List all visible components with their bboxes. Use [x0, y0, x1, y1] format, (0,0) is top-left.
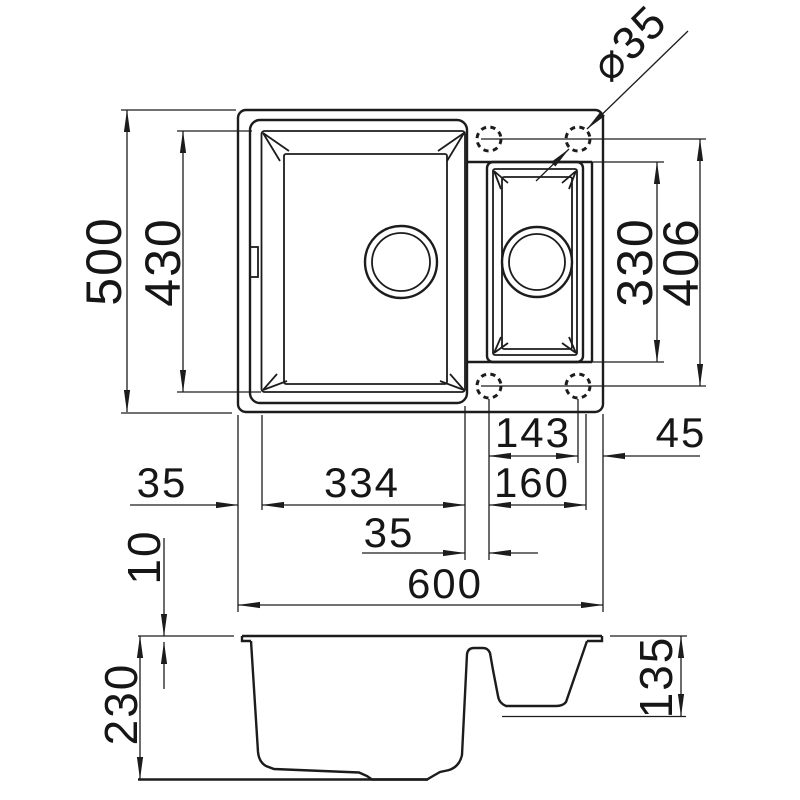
dims-bottom: 143 45 35 334 160 35 600: [130, 399, 706, 612]
front-view: 10 230 135: [95, 529, 687, 779]
dim-label-500: 500: [76, 216, 132, 305]
dim-label-334: 334: [324, 459, 400, 506]
front-bowls-profile: [251, 641, 587, 780]
dims-left: 500 430: [76, 110, 261, 413]
small-bowl-inner: [502, 177, 572, 349]
small-bowl: [487, 162, 583, 362]
tap-ledge: [467, 162, 592, 362]
dim-label-430: 430: [135, 217, 191, 306]
main-bowl-bevel-marks: [263, 133, 464, 390]
dim-label-35-mid: 35: [364, 509, 415, 556]
main-drain-inner: [372, 233, 430, 291]
small-bowl-bevel-marks: [494, 171, 576, 353]
dim-label-10: 10: [118, 529, 170, 584]
dim-label-45: 45: [656, 409, 707, 456]
main-bowl-outer: [250, 120, 467, 403]
sink-outline: [238, 110, 603, 412]
sink-technical-drawing: 500 430 330 406 ⌀35 143 45: [0, 0, 800, 800]
small-drain-inner: [509, 234, 565, 290]
dim-label-406: 406: [653, 217, 709, 306]
dims-right: 330 406 ⌀35: [536, 0, 709, 386]
main-drain-outer: [365, 226, 437, 298]
dim-label-35-left: 35: [137, 459, 188, 506]
dim-label-600: 600: [407, 560, 483, 607]
dim-label-230: 230: [95, 663, 147, 746]
main-bowl: [250, 120, 467, 403]
small-drain-outer: [502, 227, 572, 297]
main-bowl-rim: [262, 131, 466, 392]
hole-diameter-callout: ⌀35: [536, 0, 688, 181]
dim-label-160: 160: [494, 459, 570, 506]
dim-label-135: 135: [630, 636, 682, 719]
dim-label-dia35: ⌀35: [580, 0, 677, 91]
dim-label-143: 143: [495, 409, 571, 456]
drawing-canvas: 500 430 330 406 ⌀35 143 45: [0, 0, 800, 800]
